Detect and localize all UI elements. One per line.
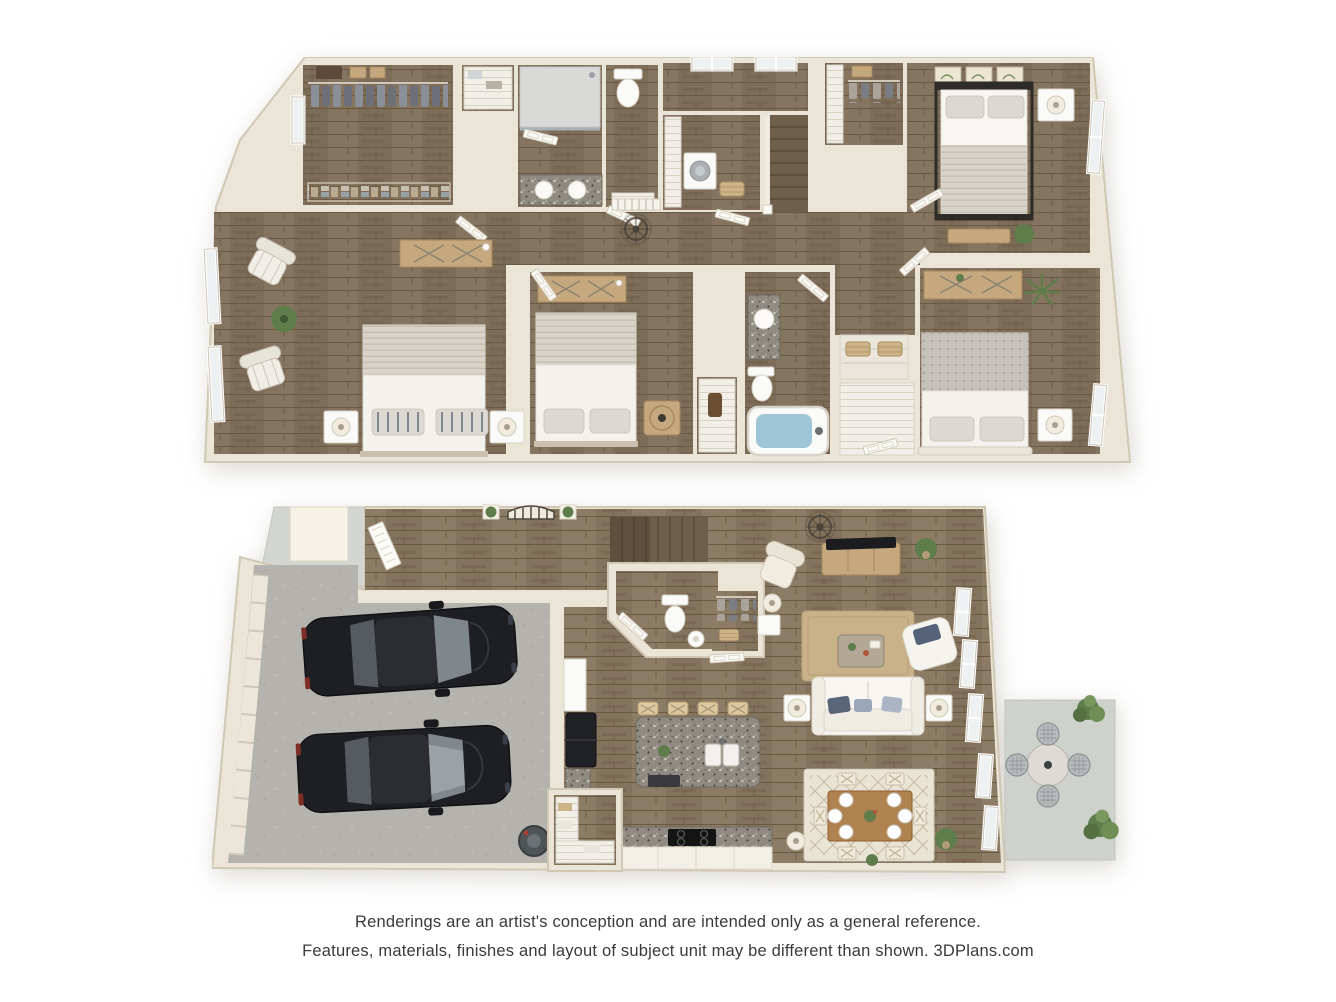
laundry-basket <box>720 182 744 196</box>
patio-chair <box>1068 754 1090 776</box>
floor-lamp <box>787 832 805 850</box>
metal-frame-bed <box>936 83 1032 219</box>
patio-chair <box>1006 754 1028 776</box>
disclaimer-line-2: Features, materials, finishes and layout… <box>0 937 1336 966</box>
dining-chair <box>838 847 856 859</box>
storage-box <box>370 67 385 78</box>
disclaimer-line-1: Renderings are an artist's conception an… <box>0 908 1336 937</box>
round-nightstand <box>644 401 680 435</box>
suitcase <box>316 66 342 79</box>
sofa <box>812 677 924 735</box>
laundry-shelves <box>665 117 681 207</box>
dining-chair <box>838 773 856 785</box>
shrub <box>1073 695 1105 722</box>
bench <box>948 229 1010 243</box>
table-lamp <box>498 418 516 436</box>
hanging-clothes <box>308 85 448 109</box>
hanging-coats <box>716 599 756 621</box>
ceiling-fan-medallion <box>805 512 835 542</box>
patio-chair <box>1037 785 1059 807</box>
upper-stair-flight <box>763 115 808 214</box>
refrigerator <box>566 713 596 767</box>
owner-window-2 <box>208 347 224 422</box>
dining-chair <box>886 773 904 785</box>
navy-pillow <box>827 696 851 715</box>
wall-art-prints <box>935 67 1023 83</box>
closet-window <box>292 97 304 143</box>
island-plant <box>658 745 670 757</box>
small-plant <box>866 854 878 866</box>
dishwasher <box>648 775 680 787</box>
bar-stool <box>638 702 658 715</box>
first-floor-plan <box>212 503 1120 879</box>
owner-window-1 <box>204 249 220 324</box>
counter-cabinet <box>564 659 586 711</box>
water-heater <box>519 826 549 856</box>
washer <box>684 153 716 189</box>
ladder-rack <box>708 393 722 417</box>
closet-basket <box>719 629 738 640</box>
wall-plant <box>563 507 574 518</box>
dining-chair <box>814 807 826 825</box>
shower-head <box>589 72 595 78</box>
ceiling-fan-medallion <box>621 214 651 244</box>
bar-stool <box>728 702 748 715</box>
two-car-garage <box>228 565 550 863</box>
walk-in-pantry <box>548 789 622 871</box>
bathtub <box>748 407 828 455</box>
tub-faucet <box>815 427 823 435</box>
dining-chair <box>914 807 926 825</box>
bed <box>534 313 638 447</box>
storage-closets <box>840 335 914 455</box>
patio <box>1005 695 1119 860</box>
table-lamp <box>1046 416 1064 434</box>
table-lamp <box>1047 96 1065 114</box>
floor-plan-rendering-page: Renderings are an artist's conception an… <box>0 0 1336 1002</box>
dresser-desk <box>400 240 492 267</box>
owner-bed <box>360 325 488 457</box>
dresser <box>924 271 1022 299</box>
bar-stool <box>698 702 718 715</box>
linen-closet-3-shelves <box>699 379 735 452</box>
pillow <box>854 699 872 712</box>
disclaimer: Renderings are an artist's conception an… <box>0 908 1336 965</box>
pillow <box>881 696 903 713</box>
under-stair-door <box>710 653 744 663</box>
wall-plant <box>486 507 497 518</box>
dining-chair <box>886 847 904 859</box>
double-vanity <box>520 175 602 205</box>
pedestal-sink <box>688 631 704 647</box>
table-lamp <box>930 699 948 717</box>
storage-box <box>350 67 366 78</box>
stair-guard-railing <box>612 199 660 210</box>
side-table <box>758 615 780 635</box>
linen-closet-shelves <box>464 67 512 109</box>
patio-chair <box>1037 723 1059 745</box>
walk-in-shower <box>520 67 600 127</box>
tv-console <box>822 537 900 575</box>
floor-lamp <box>763 594 781 612</box>
porch-column <box>290 507 348 561</box>
bed <box>918 333 1032 455</box>
cooktop <box>668 829 716 846</box>
folded-linen-shelf <box>308 183 450 201</box>
second-floor-plan <box>200 57 1135 467</box>
range-counter <box>620 827 772 869</box>
table-lamp <box>332 418 350 436</box>
bar-stool <box>668 702 688 715</box>
entry-foyer <box>365 505 615 590</box>
plant <box>1014 224 1034 244</box>
table-lamp <box>788 699 806 717</box>
coffee-table <box>838 635 884 667</box>
